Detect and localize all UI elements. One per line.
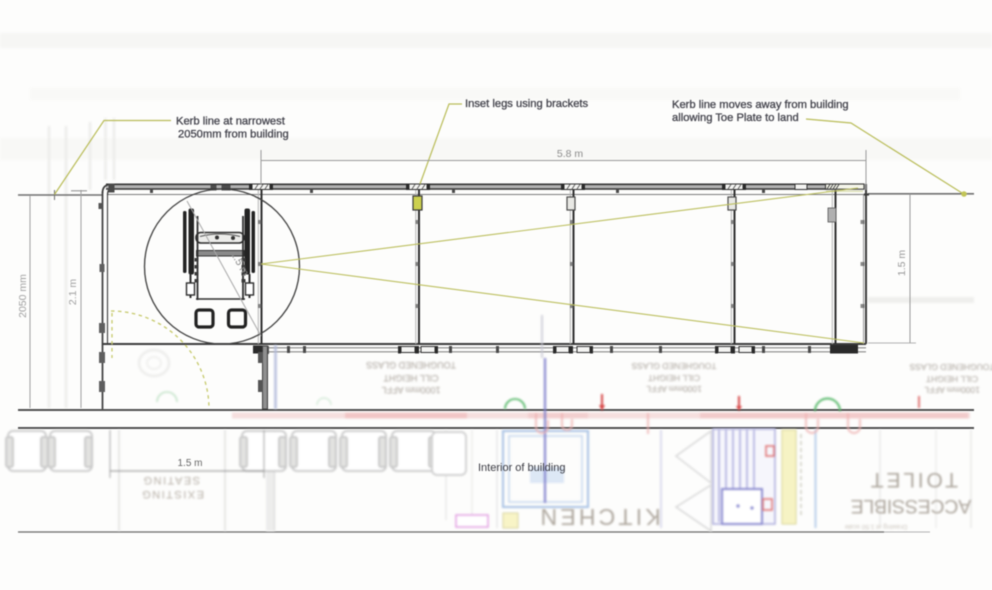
svg-text:TOUGHENED GLASS: TOUGHENED GLASS [631,361,716,371]
svg-text:allowing Toe Plate to land: allowing Toe Plate to land [672,112,799,124]
svg-text:TOILET: TOILET [868,468,958,491]
svg-text:2050 mm: 2050 mm [17,274,29,318]
svg-text:Kerb line moves away from buil: Kerb line moves away from building [672,99,849,111]
svg-text:Inset legs using brackets: Inset legs using brackets [465,98,589,110]
svg-text:2050mm from building: 2050mm from building [178,129,289,141]
svg-text:1000mm AFFL: 1000mm AFFL [646,384,702,394]
svg-text:CILL HEIGHT: CILL HEIGHT [926,374,978,384]
svg-text:Drawing at 1:50 scale: Drawing at 1:50 scale [844,523,907,530]
svg-text:5.8 m: 5.8 m [557,148,584,160]
svg-text:CILL HEIGHT: CILL HEIGHT [383,373,439,383]
svg-text:KITCHEN: KITCHEN [537,504,660,530]
svg-text:TOUGHENED GLASS: TOUGHENED GLASS [366,360,456,370]
svg-text:ACCESSIBLE: ACCESSIBLE [851,495,972,517]
svg-text:SEATING: SEATING [142,474,200,486]
svg-text:1000mm AFFL: 1000mm AFFL [924,385,980,395]
svg-text:1000mm AFFL: 1000mm AFFL [381,385,440,395]
svg-text:CILL HEIGHT: CILL HEIGHT [648,373,700,383]
svg-text:TOUGHENED GLASS: TOUGHENED GLASS [909,362,992,372]
svg-text:2.1 m: 2.1 m [67,279,79,306]
svg-text:Kerb line at narrowest: Kerb line at narrowest [176,116,286,128]
svg-text:EXISTING: EXISTING [141,488,204,500]
svg-text:Interior of building: Interior of building [478,462,565,474]
svg-text:1.5 m: 1.5 m [896,250,908,277]
svg-text:1.5 m: 1.5 m [177,458,202,469]
